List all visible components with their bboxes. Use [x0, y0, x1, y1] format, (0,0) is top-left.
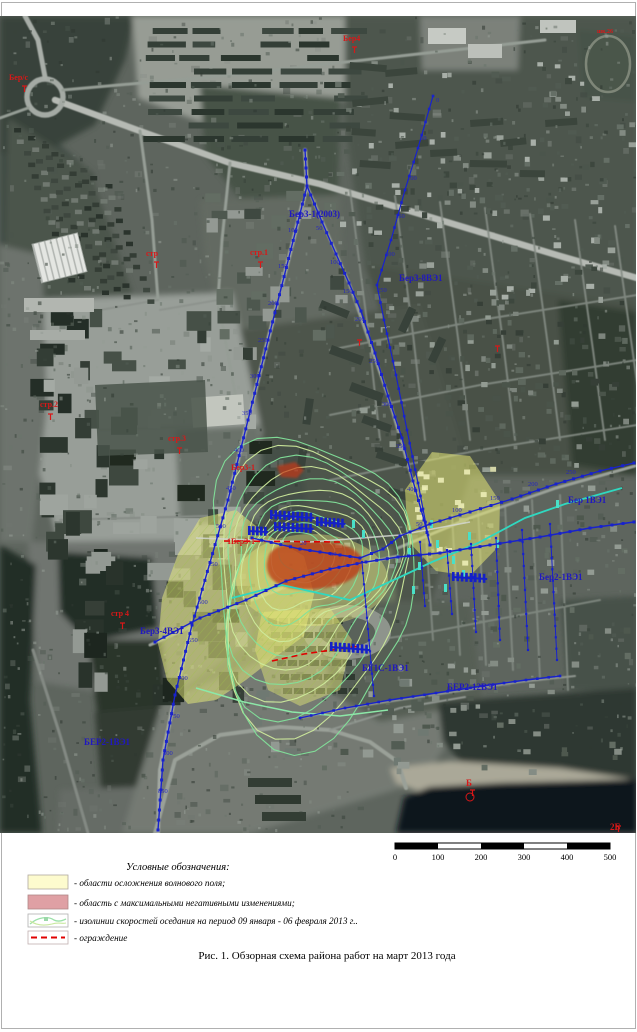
svg-text:Бер2-1ВЭ1: Бер2-1ВЭ1 [539, 572, 583, 582]
svg-text:Бер3-1(2003): Бер3-1(2003) [289, 209, 340, 219]
svg-text:Б: Б [466, 778, 472, 788]
svg-text:Бер/с: Бер/с [9, 73, 29, 82]
svg-text:Бер3-1: Бер3-1 [231, 463, 255, 472]
svg-text:300: 300 [250, 373, 260, 380]
svg-text:150: 150 [278, 263, 288, 270]
svg-text:850: 850 [158, 788, 168, 795]
svg-text:250: 250 [566, 469, 576, 476]
svg-text:Условные обозначения:: Условные обозначения: [126, 862, 230, 873]
svg-text:200: 200 [355, 316, 365, 323]
svg-text:300: 300 [518, 852, 531, 862]
svg-text:200: 200 [528, 481, 538, 488]
svg-text:20: 20 [300, 540, 307, 547]
svg-text:600: 600 [198, 599, 208, 606]
svg-text:- область с максимальными нега: - область с максимальными негативными из… [74, 898, 295, 908]
svg-text:Рис. 1. Обзорная схема района: Рис. 1. Обзорная схема района работ на м… [198, 950, 455, 962]
svg-text:550: 550 [208, 561, 218, 568]
svg-text:БЕР2-12ВЭ1: БЕР2-12ВЭ1 [447, 682, 498, 692]
svg-text:500: 500 [604, 852, 617, 862]
svg-text:Бер3-8ВЭ1: Бер3-8ВЭ1 [399, 273, 443, 283]
svg-text:0: 0 [436, 97, 439, 104]
svg-text:стр.1: стр.1 [250, 248, 268, 257]
svg-text:БЕР2-1ВЭ1: БЕР2-1ВЭ1 [84, 737, 131, 747]
svg-text:800: 800 [163, 750, 173, 757]
svg-text:350: 350 [396, 443, 406, 450]
svg-text:400: 400 [234, 447, 244, 454]
svg-text:стр: стр [146, 249, 159, 258]
svg-text:200: 200 [268, 300, 278, 307]
svg-text:стр.2: стр.2 [40, 400, 58, 409]
svg-text:750: 750 [170, 713, 180, 720]
svg-text:100: 100 [452, 507, 462, 514]
svg-text:100: 100 [330, 259, 340, 266]
svg-text:БГ1С-1ВЭ1: БГ1С-1ВЭ1 [362, 663, 409, 673]
svg-text:200: 200 [475, 852, 488, 862]
svg-text:стр.3: стр.3 [168, 434, 186, 443]
svg-text:50: 50 [416, 521, 423, 528]
svg-text:400: 400 [561, 852, 574, 862]
svg-text:- области осложнения волнового: - области осложнения волнового поля; [74, 878, 225, 888]
svg-text:30: 30 [330, 551, 337, 558]
svg-text:500: 500 [216, 523, 226, 530]
svg-text:150: 150 [343, 288, 353, 295]
svg-text:400: 400 [407, 486, 417, 493]
svg-text:шк.26: шк.26 [597, 29, 613, 35]
svg-text:Бер4: Бер4 [343, 34, 360, 43]
svg-text:- ограждение: - ограждение [74, 933, 127, 943]
svg-text:0: 0 [393, 852, 397, 862]
svg-text:100: 100 [432, 852, 445, 862]
svg-text:Бер3-4ВЭ1: Бер3-4ВЭ1 [140, 626, 184, 636]
svg-text:450: 450 [226, 485, 236, 492]
svg-text:300: 300 [382, 401, 392, 408]
svg-text:350: 350 [242, 410, 252, 417]
svg-text:250: 250 [258, 337, 268, 344]
svg-text:1Бер3-1: 1Бер3-1 [227, 537, 255, 546]
svg-text:стр 4: стр 4 [111, 609, 129, 618]
svg-text:Бер 1ВЭ1: Бер 1ВЭ1 [568, 495, 607, 505]
svg-text:- изолинии скоростей оседания: - изолинии скоростей оседания на период … [74, 916, 358, 926]
svg-text:150: 150 [490, 495, 500, 502]
svg-text:250: 250 [369, 358, 379, 365]
svg-text:100: 100 [288, 227, 298, 234]
svg-text:700: 700 [178, 675, 188, 682]
svg-text:50: 50 [316, 225, 323, 232]
svg-text:650: 650 [188, 637, 198, 644]
svg-text:2Б: 2Б [610, 822, 621, 832]
